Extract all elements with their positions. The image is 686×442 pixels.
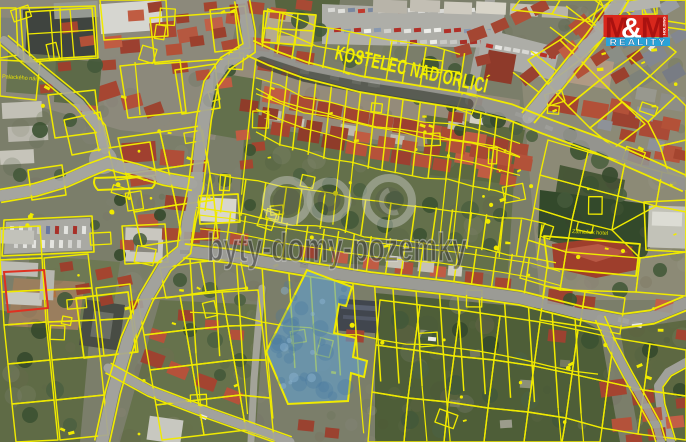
svg-text:HOLDING: HOLDING bbox=[662, 17, 667, 35]
svg-text:Zámeček hotel: Zámeček hotel bbox=[572, 229, 608, 237]
svg-text:REALITY: REALITY bbox=[610, 37, 668, 47]
svg-text:byty-domy-pozemky: byty-domy-pozemky bbox=[207, 226, 467, 270]
